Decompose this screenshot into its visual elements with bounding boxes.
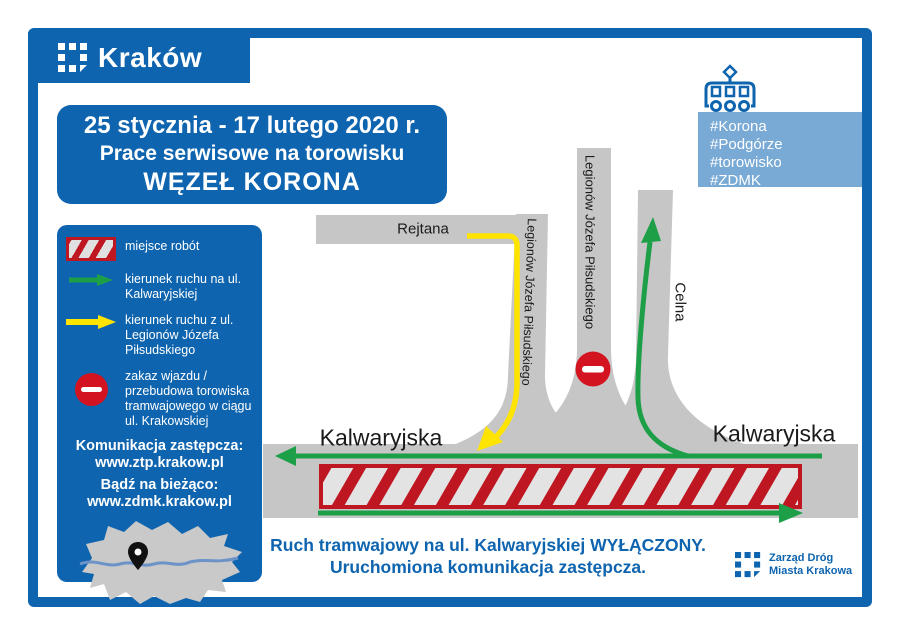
legend-label: zakaz wjazdu / przebudowa torowiska tram… [125,367,254,429]
legend-item-roadworks: miejsce robót [65,237,254,261]
zdmk-logo-line-2: Miasta Krakowa [769,565,852,578]
street-label-kalwaryjska-right: Kalwaryjska [713,421,836,448]
stay-updated-url: www.zdmk.krakow.pl [65,494,254,510]
zdmk-logo: Zarząd Dróg Miasta Krakowa [735,552,852,578]
infographic-poster: Rejtana Legionów Józefa Piłsudskiego Leg… [0,0,900,635]
street-label-kalwaryjska-left: Kalwaryjska [320,425,443,452]
title-box: 25 stycznia - 17 lutego 2020 r. Prace se… [57,105,447,204]
legend-item-yellow-route: kierunek ruchu z ul. Legionów Józefa Pił… [65,311,254,358]
hashtag-item: #torowisko [710,154,862,172]
roadworks-hatch-icon [66,237,116,261]
hashtag-item: #Korona [710,118,862,136]
legend-item-no-entry: zakaz wjazdu / przebudowa torowiska tram… [65,367,254,429]
legend-label: miejsce robót [125,237,199,261]
replacement-transport-heading: Komunikacja zastępcza: [65,438,254,454]
legend-label: kierunek ruchu z ul. Legionów Józefa Pił… [125,311,254,358]
hashtag-item: #ZDMK [710,172,862,190]
hashtag-item: #Podgórze [710,136,862,154]
tram-icon [701,64,759,114]
street-label-celna: Celna [672,282,689,321]
no-entry-sign [576,352,611,387]
caption-line-2: Uruchomiona komunikacja zastępcza. [268,556,708,578]
krakow-logo-icon [58,43,88,73]
bottom-caption: Ruch tramwajowy na ul. Kalwaryjskiej WYŁ… [268,534,708,578]
roadworks-hatch [321,466,800,507]
legend-panel: miejsce robót kierunek ruchu na ul. Kalw… [57,225,262,582]
title-subtitle: Prace serwisowe na torowisku [57,142,447,166]
replacement-transport-url: www.ztp.krakow.pl [65,455,254,471]
yellow-route [467,236,517,451]
street-label-rejtana: Rejtana [397,221,449,238]
hashtag-box: #Korona #Podgórze #torowisko #ZDMK [698,112,862,187]
no-entry-icon [75,373,108,406]
stay-updated-heading: Bądź na bieżąco: [65,477,254,493]
title-date: 25 stycznia - 17 lutego 2020 r. [57,112,447,140]
krakow-map [74,518,246,606]
street-label-legionow-middle: Legionów Józefa Piłsudskiego [583,155,598,329]
title-name: WĘZEŁ KORONA [57,168,447,197]
green-arrow-icon [69,274,113,286]
krakow-banner-label: Kraków [98,42,202,74]
legend-label: kierunek ruchu na ul. Kalwaryjskiej [125,270,254,302]
legend-item-green-route: kierunek ruchu na ul. Kalwaryjskiej [65,270,254,302]
zdmk-logo-text: Zarząd Dróg Miasta Krakowa [769,552,852,578]
krakow-banner: Kraków [28,32,250,83]
zdmk-logo-line-1: Zarząd Dróg [769,552,852,565]
yellow-arrow-icon [66,315,116,329]
caption-line-1: Ruch tramwajowy na ul. Kalwaryjskiej WYŁ… [268,534,708,556]
zdmk-logo-icon [735,552,761,578]
